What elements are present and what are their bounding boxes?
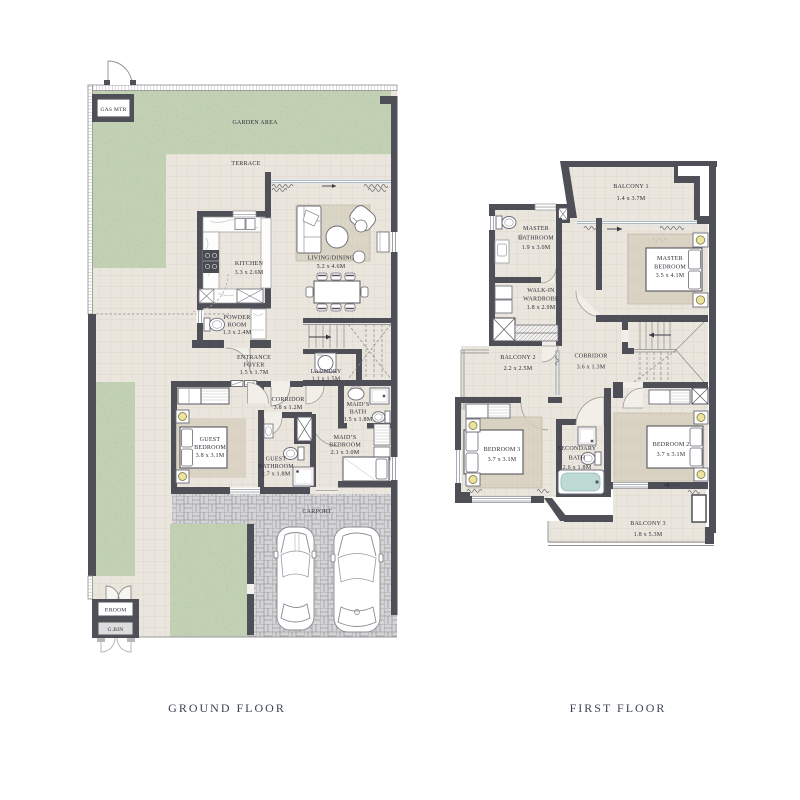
- svg-text:GUEST: GUEST: [266, 457, 287, 463]
- svg-text:BEDROOM: BEDROOM: [194, 445, 226, 451]
- svg-text:CORRIDOR: CORRIDOR: [271, 397, 305, 403]
- svg-text:3.6 x 1.3M: 3.6 x 1.3M: [577, 365, 606, 371]
- svg-text:MAID’S: MAID’S: [347, 402, 370, 408]
- svg-text:LAUNDRY: LAUNDRY: [311, 369, 342, 375]
- svg-text:BALCONY 1: BALCONY 1: [613, 184, 649, 190]
- svg-text:BALCONY 3: BALCONY 3: [630, 521, 666, 527]
- svg-text:G.BIN: G.BIN: [107, 627, 123, 633]
- svg-text:MAID’S: MAID’S: [334, 435, 357, 441]
- svg-text:2.2 x 2.5M: 2.2 x 2.5M: [504, 366, 533, 372]
- svg-text:P.ROOM: P.ROOM: [105, 608, 127, 614]
- svg-text:BEDROOM: BEDROOM: [329, 443, 361, 449]
- svg-text:LIVING/DINING: LIVING/DINING: [308, 256, 355, 262]
- svg-text:BATHROOM: BATHROOM: [258, 464, 294, 470]
- svg-text:3.7 x 3.1M: 3.7 x 3.1M: [488, 457, 517, 463]
- svg-text:TERRACE: TERRACE: [231, 161, 260, 167]
- svg-text:WALK-IN: WALK-IN: [527, 288, 555, 294]
- svg-text:GARDEN AREA: GARDEN AREA: [232, 120, 278, 126]
- svg-text:3.7 x 3.1M: 3.7 x 3.1M: [657, 452, 686, 458]
- svg-text:GAS MTR: GAS MTR: [100, 107, 126, 113]
- svg-text:3.5 x 4.1M: 3.5 x 4.1M: [656, 273, 685, 279]
- svg-text:BEDROOM: BEDROOM: [654, 265, 686, 271]
- svg-text:2.1 x 3.0M: 2.1 x 3.0M: [331, 450, 360, 456]
- svg-text:3.8 x 1.2M: 3.8 x 1.2M: [274, 405, 303, 411]
- svg-text:1.5 x 1.8M: 1.5 x 1.8M: [344, 417, 373, 423]
- svg-text:MASTER: MASTER: [523, 226, 550, 232]
- svg-text:BATH: BATH: [350, 410, 367, 416]
- svg-text:3.3 x 2.6M: 3.3 x 2.6M: [235, 270, 264, 276]
- svg-text:1.1 x 1.5M: 1.1 x 1.5M: [312, 377, 341, 383]
- svg-text:BEDROOM 3: BEDROOM 3: [484, 447, 521, 453]
- svg-text:1.4 x 3.7M: 1.4 x 3.7M: [617, 196, 646, 202]
- svg-text:1.8 x 2.9M: 1.8 x 2.9M: [527, 305, 556, 311]
- svg-text:1.5 x 1.7M: 1.5 x 1.7M: [240, 370, 269, 376]
- svg-text:BEDROOM 2: BEDROOM 2: [653, 442, 690, 448]
- svg-text:5.2 x 4.6M: 5.2 x 4.6M: [317, 264, 346, 270]
- svg-text:1.3 x 2.4M: 1.3 x 2.4M: [223, 330, 252, 336]
- svg-text:CORRIDOR: CORRIDOR: [574, 354, 608, 360]
- svg-text:1.8 x 5.3M: 1.8 x 5.3M: [634, 532, 663, 538]
- svg-text:GUEST: GUEST: [200, 437, 221, 443]
- svg-text:ROOM: ROOM: [227, 323, 246, 329]
- svg-text:ENTRANCE: ENTRANCE: [237, 355, 271, 361]
- svg-text:MASTER: MASTER: [657, 256, 684, 262]
- svg-text:GROUND FLOOR: GROUND FLOOR: [168, 701, 286, 715]
- svg-text:FOYER: FOYER: [244, 363, 266, 369]
- svg-text:BATHROOM: BATHROOM: [518, 236, 554, 242]
- svg-text:2.6 x 1.8M: 2.6 x 1.8M: [563, 465, 592, 471]
- svg-text:CARPORT: CARPORT: [302, 509, 331, 515]
- svg-text:2.7 x 1.8M: 2.7 x 1.8M: [262, 472, 291, 478]
- svg-text:BATH: BATH: [569, 456, 586, 462]
- svg-text:3.8 x 3.1M: 3.8 x 3.1M: [196, 453, 225, 459]
- svg-text:BALCONY 2: BALCONY 2: [500, 355, 536, 361]
- svg-text:1.9 x 3.0M: 1.9 x 3.0M: [522, 245, 551, 251]
- svg-text:POWDER: POWDER: [224, 315, 252, 321]
- svg-text:SECONDARY: SECONDARY: [558, 446, 597, 452]
- svg-text:KITCHEN: KITCHEN: [235, 261, 264, 267]
- svg-text:FIRST FLOOR: FIRST FLOOR: [570, 701, 667, 715]
- svg-text:WARDROBE: WARDROBE: [523, 297, 559, 303]
